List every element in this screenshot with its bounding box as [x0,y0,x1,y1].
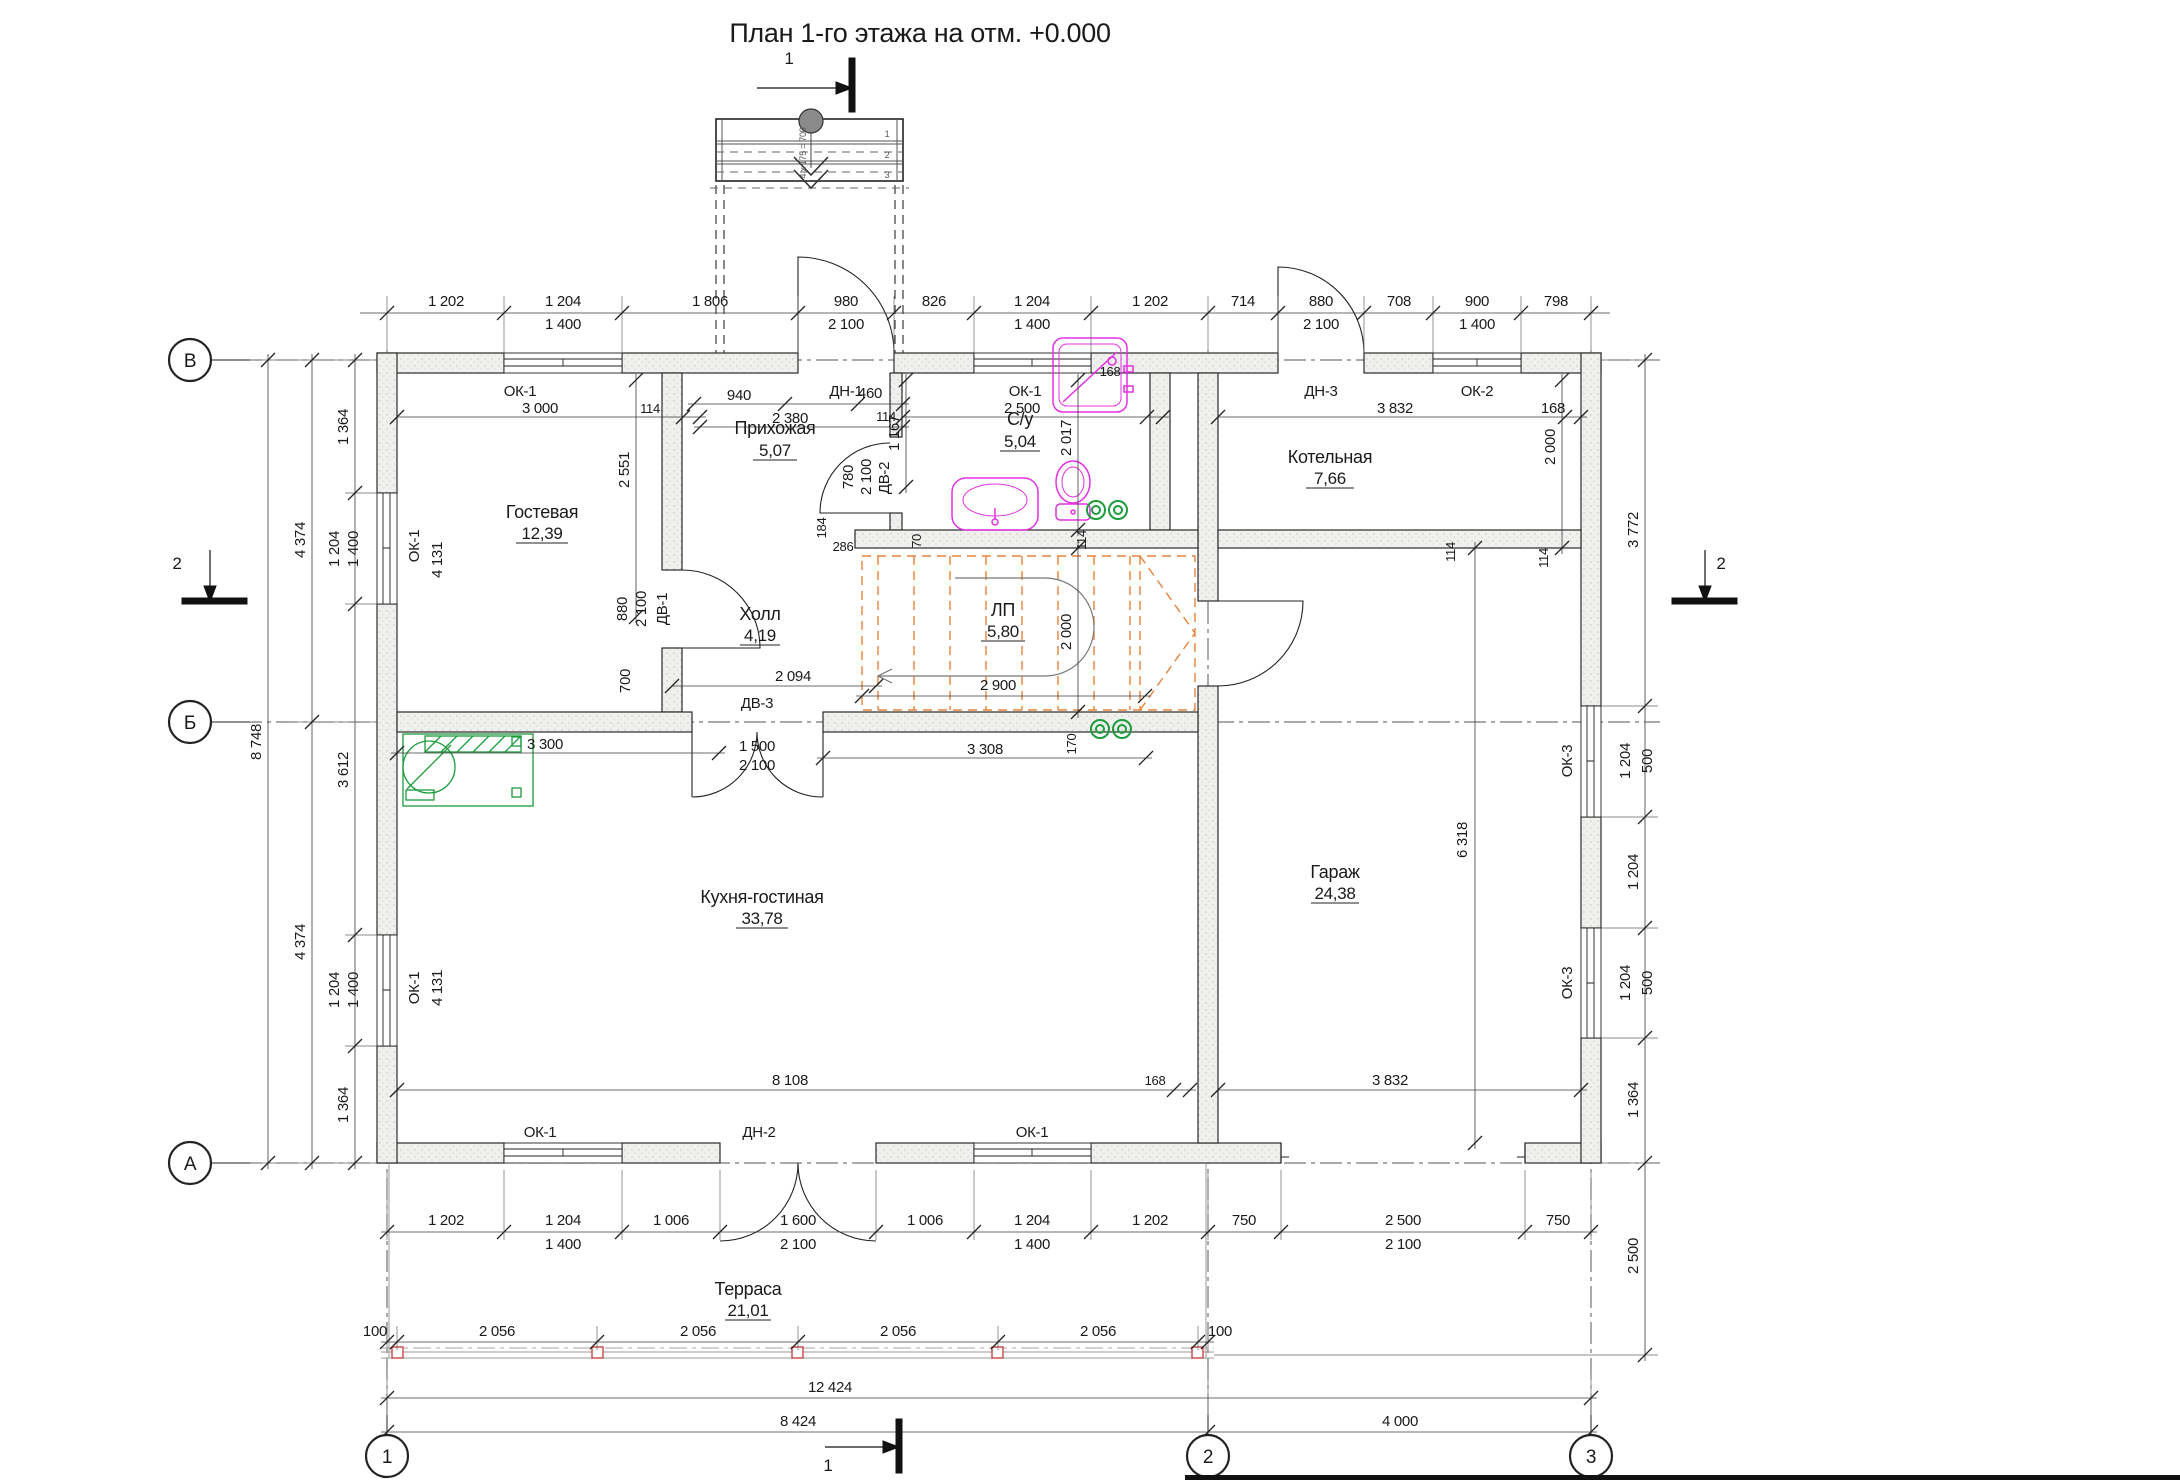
dim-label: 2 056 [880,1323,916,1340]
drawing-title: План 1-го этажа на отм. +0.000 [729,18,1110,48]
room-terrace-area: 21,01 [727,1301,768,1320]
porch-step-number: 1 [885,129,890,139]
dim-label: 3 772 [1625,512,1642,548]
dim-label: 2 100 [633,591,650,627]
dim-label: 1 400 [1014,316,1050,333]
room-guest-area: 12,39 [521,524,562,543]
dim-label: 2 000 [1542,429,1559,465]
room-hall-area: 4,19 [744,626,776,645]
dim-label: 1 204 [1625,854,1642,890]
window-tag: ОК-1 [504,383,537,400]
room-stairs-area: 5,80 [987,622,1019,641]
dim-label: 3 832 [1372,1072,1408,1089]
dim-label: 700 [617,669,634,693]
toilet [1056,461,1090,520]
dim-label: 1 204 [1014,293,1050,310]
axis-col-2: 2 [1203,1447,1213,1468]
window-tag: ОК-3 [1559,967,1576,1000]
door-tag: ДВ-1 [654,593,671,625]
dim-label: 1 364 [1625,1082,1642,1118]
dim-label: 1 400 [345,531,362,567]
dim-label: 2 056 [680,1323,716,1340]
dim-label: 3 000 [522,400,558,417]
dim-label: 500 [1639,749,1656,773]
entrance-porch: 1 2 3 4 х 175 = 700 [710,109,909,188]
door-tag: ДВ-3 [741,695,773,712]
dim-label: 100 [1208,1323,1232,1340]
dim-label: 1 167 [886,415,903,451]
dim-label: 1 364 [335,1087,352,1123]
dim-label: 3 612 [335,752,352,788]
dim-label: 2 056 [1080,1323,1116,1340]
dim-label: 168 [1100,364,1121,379]
dim-label: 114 [1443,542,1458,562]
fireplace [403,734,533,806]
washbasin [952,478,1038,530]
section-label-2-left: 2 [172,554,181,573]
section-label-1-bottom: 1 [823,1456,832,1475]
porch-step-number: 2 [885,150,890,160]
dim-label: 780 [840,465,857,489]
dim-label: 2 500 [1004,400,1040,417]
dim-label: 3 308 [967,741,1003,758]
dim-label: 750 [1232,1212,1256,1229]
dim-label: 4 374 [292,522,309,558]
dim-label: 1 364 [335,409,352,445]
room-kitchen-area: 33,78 [741,909,782,928]
dim-label: 70 [909,534,924,548]
shower-cabin [1053,338,1133,412]
dim-label: 1 006 [907,1212,943,1229]
dim-label: 1 400 [1459,316,1495,333]
dim-label: 1 204 [545,293,581,310]
dim-label: 980 [834,293,858,310]
dim-label: 2 000 [1058,614,1075,650]
dim-label: 1 500 [739,738,775,755]
dim-label: 1 400 [545,316,581,333]
dim-label: 114 [1536,548,1551,568]
dimension-ticks [261,306,1652,1439]
dim-label: 12 424 [808,1379,852,1396]
dim-label: 100 [363,1323,387,1340]
dim-label: 114 [640,401,660,416]
dim-label: 826 [922,293,946,310]
dim-label: 2 100 [858,459,875,495]
dim-label: 1 806 [692,293,728,310]
dim-label: 114 [1074,530,1089,550]
dim-label: 4 000 [1382,1413,1418,1430]
section-label-2-right: 2 [1716,554,1725,573]
dim-label: 1 202 [1132,293,1168,310]
dim-label: 2 500 [1385,1212,1421,1229]
dim-label: 880 [1309,293,1333,310]
dim-label: 170 [1064,734,1079,755]
floor-plan-canvas: 1 2 3 4 х 175 = 700 [0,0,2180,1484]
room-hallway-area: 5,07 [759,441,791,460]
window-tag: ОК-1 [406,530,423,563]
dim-label: 1 006 [653,1212,689,1229]
dimension-labels: 1 202 1 204 1 400 1 806 980 2 100 826 1 … [248,293,1656,1430]
axis-grid-lines [240,350,1660,1433]
dim-label: 1 204 [545,1212,581,1229]
dim-label: 2 100 [1303,316,1339,333]
dim-label: 286 [833,539,854,554]
dim-label: 1 400 [1014,1236,1050,1253]
room-garage-name: Гараж [1310,862,1360,882]
dim-label: 880 [614,597,631,621]
dim-label: 4 131 [429,542,446,578]
dim-label: 1 400 [345,972,362,1008]
dim-label: 1 204 [1014,1212,1050,1229]
room-hall-name: Холл [739,604,780,624]
dim-label: 500 [1639,971,1656,995]
room-kitchen-name: Кухня-гостиная [700,887,823,907]
door-tag: ДВ-2 [876,462,893,494]
window-tag: ОК-1 [1016,1124,1049,1141]
dim-label: 750 [1546,1212,1570,1229]
title-block-edge [1185,1475,2180,1480]
dim-label: 8 424 [780,1413,816,1430]
dim-label: 1 202 [1132,1212,1168,1229]
window-tag: ОК-2 [1461,383,1494,400]
window-tag: ОК-1 [406,972,423,1005]
room-boiler-name: Котельная [1288,447,1372,467]
dim-label: 900 [1465,293,1489,310]
dim-label: 2 017 [1058,420,1075,456]
window-tag: ОК-3 [1559,745,1576,778]
axis-row-Б: Б [184,713,196,734]
room-stairs-name: ЛП [991,600,1015,620]
section-marks [182,58,1737,1473]
area-underlines [516,451,1359,1320]
room-bathroom-area: 5,04 [1004,432,1036,451]
dim-label: 1 202 [428,293,464,310]
porch-step-number: 3 [885,170,890,180]
dim-label: 1 202 [428,1212,464,1229]
dim-label: 2 380 [772,410,808,427]
room-boiler-area: 7,66 [1314,469,1346,488]
dim-label: 2 100 [739,757,775,774]
extension-lines [240,296,1658,1438]
dim-label: 6 318 [1454,822,1471,858]
door-tag: ДН-3 [1304,383,1337,400]
axis-col-3: 3 [1586,1447,1596,1468]
dim-label: 2 100 [1385,1236,1421,1253]
door-tag: ДН-2 [742,1124,775,1141]
dim-label: 1 204 [1617,965,1634,1001]
axis-row-А: А [184,1154,197,1175]
dim-label: 1 204 [1617,743,1634,779]
vestibule-walls [716,185,903,353]
dim-label: 940 [727,387,751,404]
dim-label: 2 094 [775,668,811,685]
dim-label: 798 [1544,293,1568,310]
opening-tags: ОК-1 ОК-1 ОК-1 ОК-1 ОК-1 ОК-1 ОК-2 ОК-3 … [406,383,1576,1141]
room-guest-name: Гостевая [506,502,578,522]
room-terrace-name: Терраса [715,1279,783,1299]
dim-label: 2 056 [479,1323,515,1340]
section-label-1-top: 1 [784,49,793,68]
dim-label: 184 [814,518,829,539]
dim-label: 714 [1231,293,1255,310]
axis-row-В: В [184,351,196,372]
dim-label: 2 100 [780,1236,816,1253]
dim-label: 3 832 [1377,400,1413,417]
dim-label: 8 108 [772,1072,808,1089]
dim-label: 460 [858,385,882,402]
dim-label: 1 204 [326,972,343,1008]
dim-label: 1 600 [780,1212,816,1229]
axis-col-1: 1 [382,1447,392,1468]
dim-label: 4 374 [292,924,309,960]
dim-label: 8 748 [248,724,265,760]
dim-label: 2 100 [828,316,864,333]
dim-label: 2 900 [980,677,1016,694]
dim-label: 708 [1387,293,1411,310]
window-tag: ОК-1 [524,1124,557,1141]
window-tag: ОК-1 [1009,383,1042,400]
dim-label: 1 204 [326,531,343,567]
porch-steps-note: 4 х 175 = 700 [798,127,808,178]
dim-label: 168 [1145,1073,1166,1088]
dim-label: 2 551 [616,452,633,488]
dim-label: 4 131 [429,970,446,1006]
staircase [862,556,1195,710]
dim-label: 1 400 [545,1236,581,1253]
dim-label: 3 300 [527,736,563,753]
dim-label: 2 500 [1625,1238,1642,1274]
dim-label: 168 [1541,400,1565,417]
room-garage-area: 24,38 [1314,884,1355,903]
